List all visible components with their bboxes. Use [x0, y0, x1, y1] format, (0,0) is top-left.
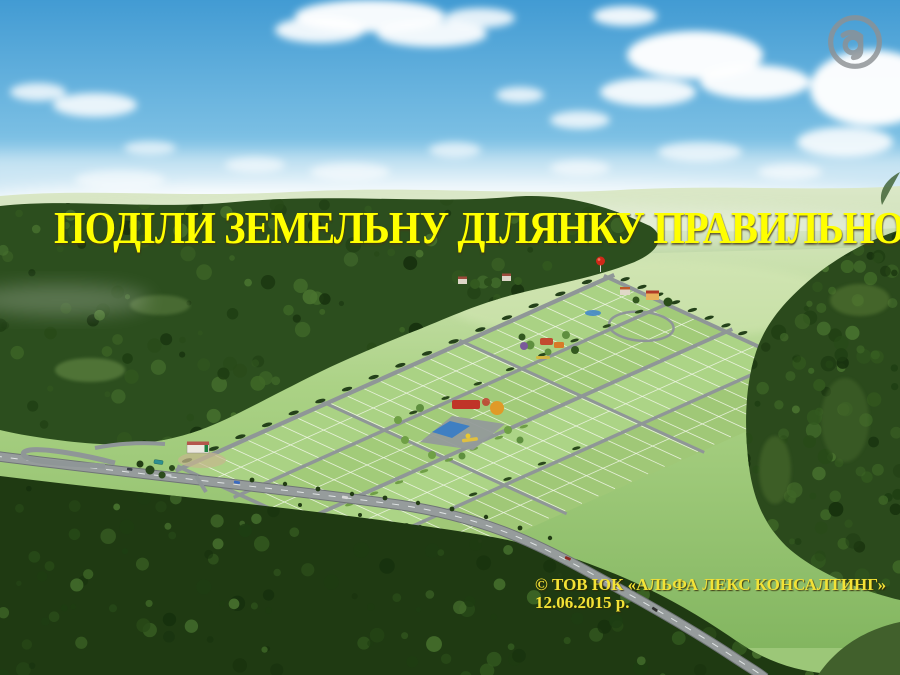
alfa-logo-icon [826, 13, 884, 71]
red-balloon-marker [596, 257, 605, 266]
aerial-landscape-render [0, 0, 900, 675]
slide-title: ПОДІЛИ ЗЕМЕЛЬНУ ДІЛЯНКУ ПРАВИЛЬНО! [54, 201, 846, 254]
copyright-line1: © ТОВ ЮК «АЛЬФА ЛЕКС КОНСАЛТИНГ» [535, 576, 886, 594]
green-road-sign [205, 445, 209, 452]
presentation-slide: ПОДІЛИ ЗЕМЕЛЬНУ ДІЛЯНКУ ПРАВИЛЬНО! © ТОВ… [0, 0, 900, 675]
copyright-note: © ТОВ ЮК «АЛЬФА ЛЕКС КОНСАЛТИНГ» 12.06.2… [535, 576, 886, 611]
copyright-line2: 12.06.2015 р. [535, 594, 886, 612]
